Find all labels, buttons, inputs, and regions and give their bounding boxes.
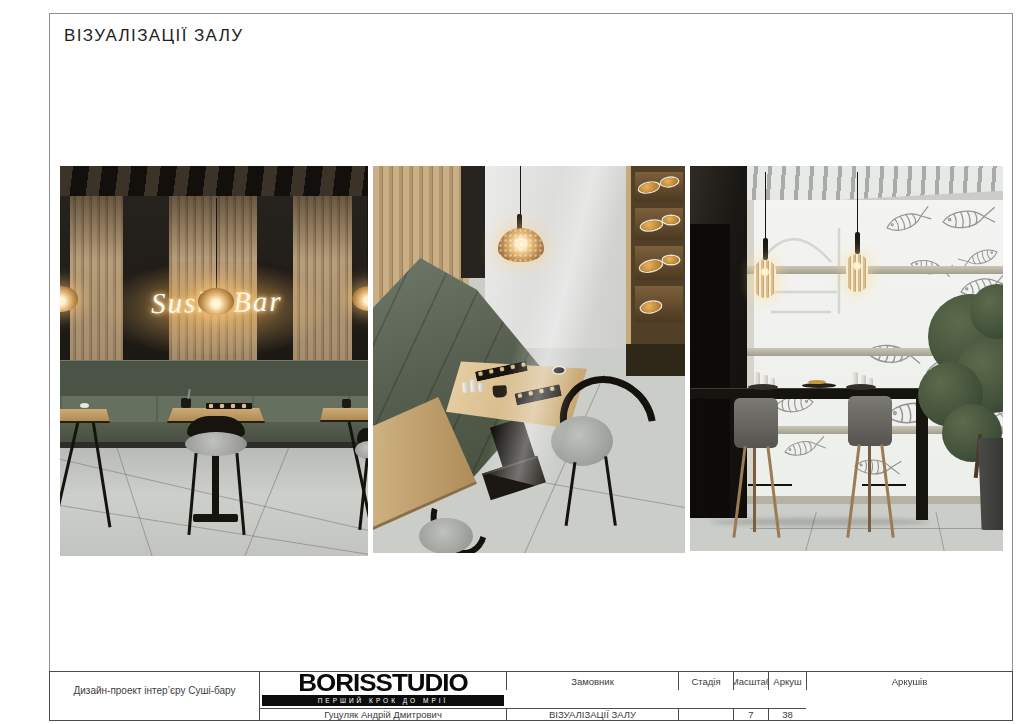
table-top: [320, 408, 368, 422]
sheet-label: Аркуш: [768, 672, 806, 690]
bar-table-top: [690, 388, 928, 399]
studio-logo: BORISSTUDIO ПЕРШИЙ КРОК ДО МРІЇ: [259, 672, 506, 708]
project-name: Дизайн-проект інтер’єру Суші-бару: [50, 672, 259, 708]
stool-leg: [868, 446, 871, 532]
title-block: Дизайн-проект інтер’єру Суші-бару Замовн…: [49, 671, 1013, 721]
pendant-cord: [216, 198, 217, 290]
studio-logo-name: BORISSTUDIO: [262, 673, 504, 695]
window-sill: [747, 496, 1003, 504]
pendant-cord: [765, 172, 766, 244]
bowl: [80, 403, 89, 408]
page-title: ВІЗУАЛІЗАЦІЇ ЗАЛУ: [64, 26, 243, 46]
stage-label: Стадія: [678, 672, 733, 690]
pendant-bulb: [517, 240, 525, 248]
table-base: [193, 514, 238, 522]
table-top: [60, 409, 110, 423]
cabinet-edge: [626, 166, 631, 344]
scale-label: Масштаб: [733, 672, 768, 690]
dark-beam-ceiling: [60, 166, 368, 198]
banquette-backrest: [60, 360, 368, 397]
scale-value: [678, 708, 733, 720]
black-wall-panel: [352, 196, 368, 362]
bar-table-leg: [696, 398, 706, 516]
bar-stool-seat: [734, 398, 778, 448]
client-label: Замовник: [506, 672, 678, 690]
pendant-lamp: [198, 288, 234, 315]
plate: [748, 384, 778, 390]
food: [808, 380, 826, 384]
sheets-label: Аркушів: [806, 672, 1012, 690]
render-sofa-sushi-table: [373, 166, 685, 553]
render-neon-sushi-bar-wall: Sushi Bar: [60, 166, 368, 556]
pendant-cord: [367, 198, 368, 288]
pendant-bulb: [761, 268, 769, 276]
cabinet-cupboard: [626, 344, 685, 376]
sheets-value: 38: [768, 708, 806, 720]
black-wall-panel: [60, 196, 70, 362]
display-cabinet: [626, 166, 685, 344]
pendant-lamp: [754, 260, 776, 298]
planter: [978, 438, 1003, 530]
stool-leg: [753, 448, 756, 532]
client-value: Гуцуляк Андрій Дмитрович: [259, 708, 506, 720]
pendant-cord: [857, 172, 858, 238]
pendant-stem: [855, 232, 860, 254]
pendant-bulb: [853, 262, 861, 270]
stage-value: ВІЗУАЛІЗАЦІЇ ЗАЛУ: [506, 708, 678, 720]
chair-cushion: [419, 518, 473, 553]
plate: [846, 384, 876, 390]
chair-leg: [565, 462, 577, 526]
floor-shadow: [710, 518, 930, 526]
pendant-lamp: [846, 254, 868, 292]
render-bar-table-window: [690, 166, 1003, 551]
sheet-value: 7: [733, 708, 768, 720]
bar-stool-seat: [848, 396, 892, 446]
sushi-tray: [206, 403, 252, 409]
pendant-stem: [763, 238, 768, 260]
teapot: [342, 399, 351, 408]
teapot: [181, 398, 191, 408]
window-mullion: [747, 266, 1003, 274]
